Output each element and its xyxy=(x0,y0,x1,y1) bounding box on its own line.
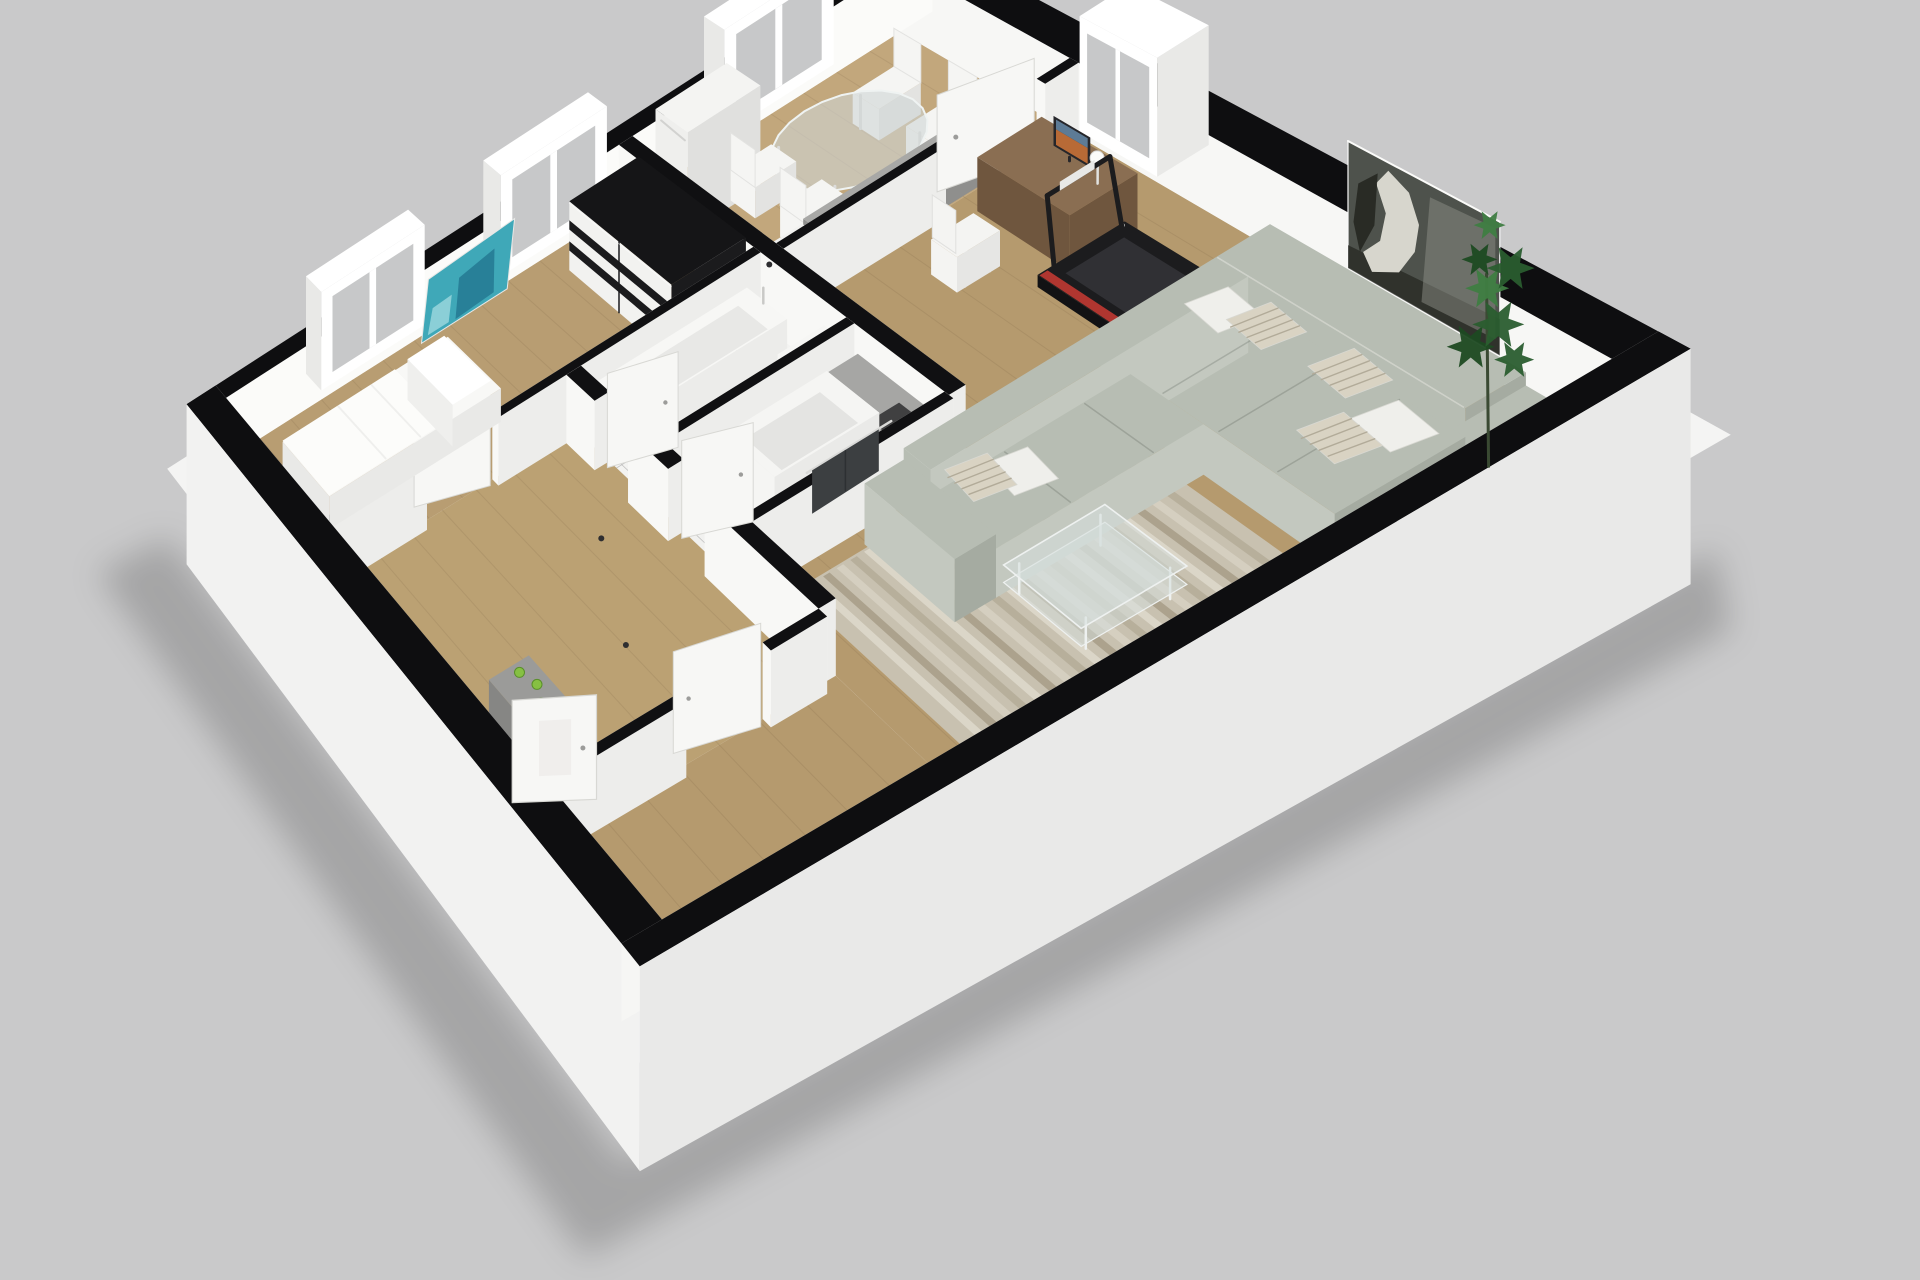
door-shower-room xyxy=(682,423,754,539)
scene-svg xyxy=(0,0,1920,1280)
door-entry xyxy=(512,695,596,803)
floor-plan-3d-render xyxy=(0,0,1920,1280)
